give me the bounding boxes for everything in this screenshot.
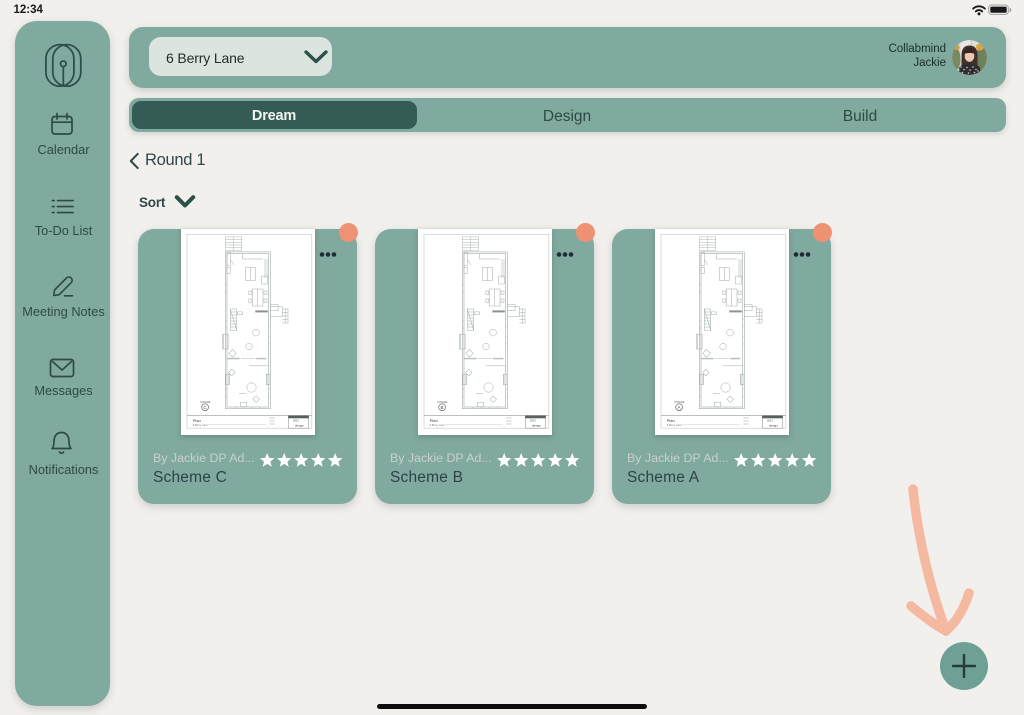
svg-text:B: B: [440, 404, 443, 409]
